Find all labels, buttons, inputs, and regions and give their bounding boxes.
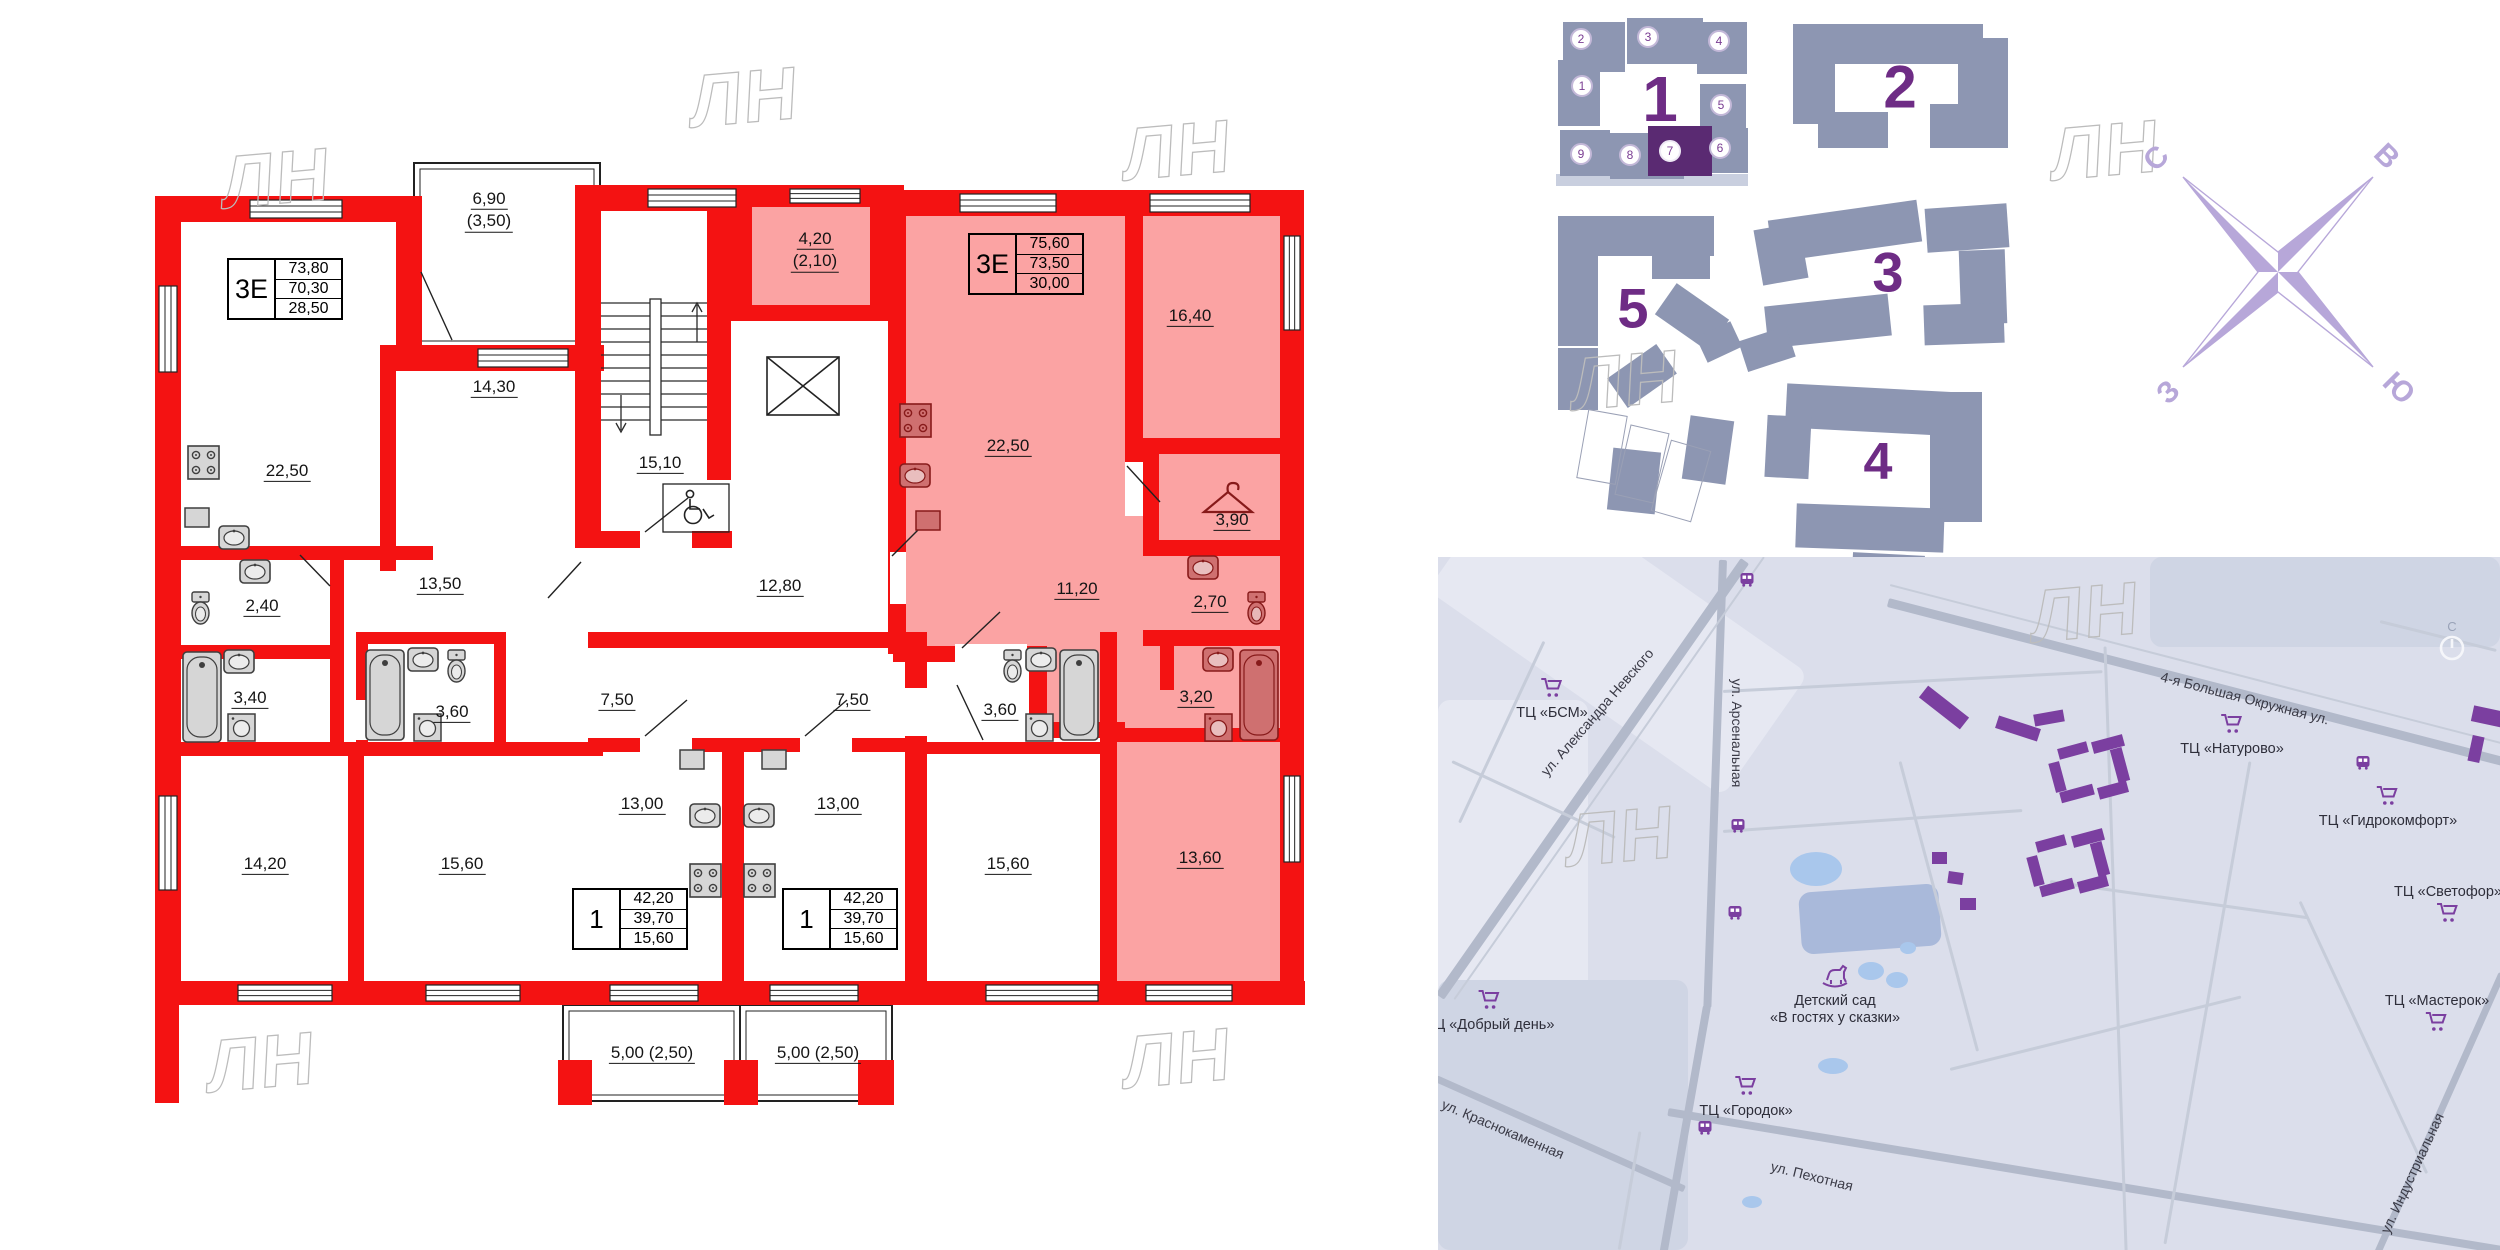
room-area-label: 3,40 — [231, 687, 268, 709]
apartment-info-table[interactable]: 142,2039,7015,60 — [572, 888, 688, 950]
building-block — [1958, 38, 2008, 110]
cart-icon — [1733, 1074, 1759, 1098]
compass-south-label: Ю — [2376, 366, 2421, 411]
room-area-label: 2,70 — [1191, 591, 1228, 613]
bus-stop — [1731, 818, 1746, 838]
residential-complex-building — [2033, 709, 2065, 726]
residential-complex-building — [2026, 855, 2044, 887]
compass-east-label: В — [2367, 137, 2406, 176]
room-area-label: 12,80 — [757, 575, 804, 597]
room-area-label: 22,50 — [985, 435, 1032, 457]
north-circle-icon — [2438, 634, 2466, 662]
pond — [1900, 942, 1916, 954]
cart-icon — [2424, 1010, 2450, 1034]
building-block — [1558, 348, 1598, 410]
building-block — [1795, 503, 1944, 552]
room-area-label: 13,60 — [1177, 847, 1224, 869]
street-label: ул. Индустриальная — [2377, 1110, 2447, 1235]
poi-label: ТЦ «Гидрокомфорт» — [2319, 813, 2457, 830]
room-area-label: 5,00 (2,50) — [775, 1042, 861, 1064]
residential-complex-building — [2048, 761, 2066, 793]
apartment-type: 1 — [574, 890, 621, 948]
building-block — [1930, 392, 1982, 522]
site-building — [1607, 344, 1677, 408]
map-poi: ТЦ «Светофор» — [2394, 884, 2500, 930]
cart-icon — [2375, 784, 2401, 808]
cart-icon — [1477, 988, 1503, 1012]
room-area-label: 3,90 — [1213, 509, 1250, 531]
pond — [1742, 1196, 1762, 1208]
building-block — [1558, 216, 1598, 346]
building-block — [1930, 104, 2008, 148]
poi-label: ТЦ «Мастерок» — [2385, 993, 2489, 1010]
compass-rose: С В З Ю — [2120, 120, 2450, 440]
apartment-area-value: 39,70 — [621, 910, 686, 930]
section-circle[interactable]: 4 — [1708, 30, 1730, 52]
north-label: С — [2438, 619, 2466, 634]
apartment-area-value: 70,30 — [276, 280, 341, 300]
apartment-area-value: 15,60 — [831, 929, 896, 948]
street-label: ул. Пехотная — [1769, 1158, 1854, 1194]
bus-icon — [2356, 755, 2371, 770]
room-area-label: 14,20 — [242, 853, 289, 875]
section-circle[interactable]: 9 — [1570, 143, 1592, 165]
section-circle[interactable]: 7 — [1659, 140, 1681, 162]
room-area-label: 3,60 — [981, 699, 1018, 721]
apartment-area-value: 39,70 — [831, 910, 896, 930]
residential-complex-building — [2035, 834, 2067, 852]
room-area-label: 13,50 — [417, 573, 464, 595]
apartment-area-value: 15,60 — [621, 929, 686, 948]
site-building — [1738, 326, 1795, 372]
bus-stop — [1740, 572, 1755, 592]
room-area-label: 6,90(3,50) — [465, 188, 513, 233]
cart-icon — [2219, 712, 2245, 736]
street-label: ул. Арсенальная — [1729, 679, 1745, 788]
pond — [1818, 1058, 1848, 1074]
building-block — [1818, 112, 1888, 148]
bus-icon — [1731, 818, 1746, 833]
kindergarten-poi: Детский сад«В гостях у сказки» — [1770, 962, 1900, 1026]
residential-complex-building — [2471, 705, 2500, 730]
floor-plan: 22,5014,306,90(3,50)2,403,4013,5014,2015… — [0, 0, 1440, 1250]
residential-complex-building — [1932, 852, 1947, 864]
page-canvas: 22,5014,306,90(3,50)2,403,4013,5014,2015… — [0, 0, 2500, 1250]
apartment-area-value: 73,80 — [276, 260, 341, 280]
poi-label: ТЦ «Натурово» — [2180, 741, 2284, 758]
room-area-label: 3,20 — [1177, 686, 1214, 708]
room-area-label: 15,10 — [637, 452, 684, 474]
pond — [1790, 852, 1842, 886]
section-circle[interactable]: 3 — [1637, 26, 1659, 48]
poi-label: ТЦ «БСМ» — [1516, 705, 1587, 722]
poi-label: ТЦ «Светофор» — [2394, 884, 2500, 901]
room-area-label: 15,60 — [985, 853, 1032, 875]
apartment-info-table[interactable]: 3Е73,8070,3028,50 — [227, 258, 343, 320]
building-number[interactable]: 5 — [1617, 276, 1648, 341]
building-number[interactable]: 1 — [1642, 62, 1678, 136]
building-number[interactable]: 4 — [1864, 432, 1893, 492]
room-area-label: 22,50 — [264, 460, 311, 482]
room-area-label: 13,00 — [619, 793, 666, 815]
map-poi: ТЦ «Добрый день» — [1438, 988, 1554, 1034]
room-area-label: 7,50 — [833, 689, 870, 711]
residential-complex-building — [2110, 747, 2130, 783]
section-circle[interactable]: 5 — [1710, 94, 1732, 116]
room-area-label: 5,00 (2,50) — [609, 1042, 695, 1064]
room-area-label: 3,60 — [433, 701, 470, 723]
residential-complex-building — [2090, 841, 2110, 877]
room-area-label: 15,60 — [439, 853, 486, 875]
apartment-type: 3Е — [229, 260, 276, 318]
apartment-type: 1 — [784, 890, 831, 948]
apartment-area-value: 73,50 — [1017, 255, 1082, 275]
map-area-patch — [1798, 883, 1942, 955]
cart-icon — [2435, 901, 2461, 925]
bus-icon — [1728, 905, 1743, 920]
room-area-label: 14,30 — [471, 376, 518, 398]
north-indicator: С — [2438, 619, 2466, 667]
rocking-horse-icon — [1820, 962, 1850, 988]
bus-stop — [1698, 1120, 1713, 1140]
apartment-type: 3Е — [970, 235, 1017, 293]
residential-complex-building — [2039, 878, 2075, 897]
section-circle[interactable]: 1 — [1571, 75, 1593, 97]
section-circle[interactable]: 2 — [1570, 28, 1592, 50]
map-poi: ТЦ «Натурово» — [2180, 712, 2284, 758]
bus-icon — [1698, 1120, 1713, 1135]
section-circle[interactable]: 8 — [1619, 144, 1641, 166]
poi-label: Детский сад«В гостях у сказки» — [1770, 993, 1900, 1026]
section-circle[interactable]: 6 — [1709, 137, 1731, 159]
residential-complex-building — [1947, 871, 1964, 885]
room-area-label: 13,00 — [815, 793, 862, 815]
building-block — [1652, 243, 1710, 279]
building-block — [1793, 24, 1835, 124]
poi-label: ТЦ «Городок» — [1699, 1103, 1792, 1120]
room-area-label: 7,50 — [598, 689, 635, 711]
map-poi: ТЦ «Гидрокомфорт» — [2319, 784, 2457, 830]
room-area-label: 4,20(2,10) — [791, 228, 839, 273]
apartment-area-value: 28,50 — [276, 299, 341, 318]
bus-stop — [1728, 905, 1743, 925]
apartment-area-value: 42,20 — [621, 890, 686, 910]
map-minor-road — [1723, 809, 2022, 833]
room-area-label: 2,40 — [243, 595, 280, 617]
residential-complex-building — [2097, 780, 2129, 799]
room-area-label: 16,40 — [1167, 305, 1214, 327]
compass-north-label: С — [2137, 139, 2176, 178]
building-block — [1923, 303, 2004, 346]
apartment-info-table-selected[interactable]: 3Е75,6073,5030,00 — [968, 233, 1084, 295]
building-block — [1925, 203, 2010, 253]
residential-complex-building — [1960, 898, 1976, 910]
cart-icon — [1539, 676, 1565, 700]
residential-complex-building — [1919, 686, 1969, 730]
location-map[interactable]: ТЦ «БСМ»ТЦ «Натурово»ТЦ «Гидрокомфорт»ТЦ… — [1438, 557, 2500, 1250]
compass-west-label: З — [2150, 374, 2187, 411]
apartment-area-value: 75,60 — [1017, 235, 1082, 255]
residential-complex-building — [2057, 741, 2089, 759]
apartment-area-value: 30,00 — [1017, 274, 1082, 293]
poi-label: ТЦ «Добрый день» — [1438, 1017, 1554, 1034]
apartment-area-value: 42,20 — [831, 890, 896, 910]
bus-stop — [2356, 755, 2371, 775]
building-number[interactable]: 2 — [1883, 53, 1916, 122]
map-poi: ТЦ «Городок» — [1699, 1074, 1792, 1120]
apartment-info-table[interactable]: 142,2039,7015,60 — [782, 888, 898, 950]
room-area-label: 11,20 — [1054, 578, 1099, 600]
building-block — [1764, 415, 1811, 479]
building-number[interactable]: 3 — [1872, 240, 1903, 305]
map-poi: ТЦ «БСМ» — [1516, 676, 1587, 722]
bus-icon — [1740, 572, 1755, 587]
map-poi: ТЦ «Мастерок» — [2385, 993, 2489, 1039]
